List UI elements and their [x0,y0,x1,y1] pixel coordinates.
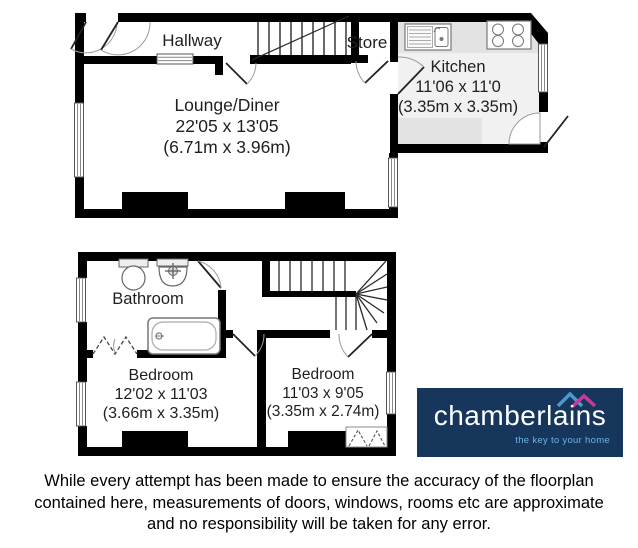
window-lounge-right [389,158,398,207]
window-kitchen-right [539,44,548,92]
first-floor-plan [77,252,397,456]
door-bathroom [198,261,221,288]
door-hall-to-lounge [226,63,256,84]
window-bedroom2-right [387,372,396,414]
stairs-ground [252,16,349,60]
bathtub-icon [148,318,220,354]
brand-name: chamberlains [417,401,623,431]
brand-tagline: the key to your home [515,435,610,446]
cupboard-bedroom2 [346,427,387,447]
chimney-breasts-first [122,431,346,447]
window-bedroom1-left [77,382,86,426]
basin-icon [157,259,188,286]
toilet-icon [119,259,148,290]
door-bedroom2 [339,334,372,357]
sink-icon [405,24,451,50]
hob-icon [487,21,531,49]
disclaimer-text: While every attempt has been made to ens… [0,471,638,536]
chimney-breasts-ground [122,192,345,209]
floorplan-canvas [0,0,638,548]
disclaimer-line-2: contained here, measurements of doors, w… [0,493,638,515]
folding-door-bathroom [93,337,137,354]
window-hallway-internal [157,54,193,64]
disclaimer-line-3: and no responsibility will be taken for … [0,514,638,536]
ground-floor-plan [71,13,568,218]
agency-logo: chamberlains the key to your home [417,388,623,457]
window-lounge-left [75,103,84,177]
window-bathroom-left [77,278,86,322]
disclaimer-line-1: While every attempt has been made to ens… [0,471,638,493]
floorplan-page: Hallway Store Kitchen 11'06 x 11'0 (3.35… [0,0,638,548]
door-store [356,61,388,83]
